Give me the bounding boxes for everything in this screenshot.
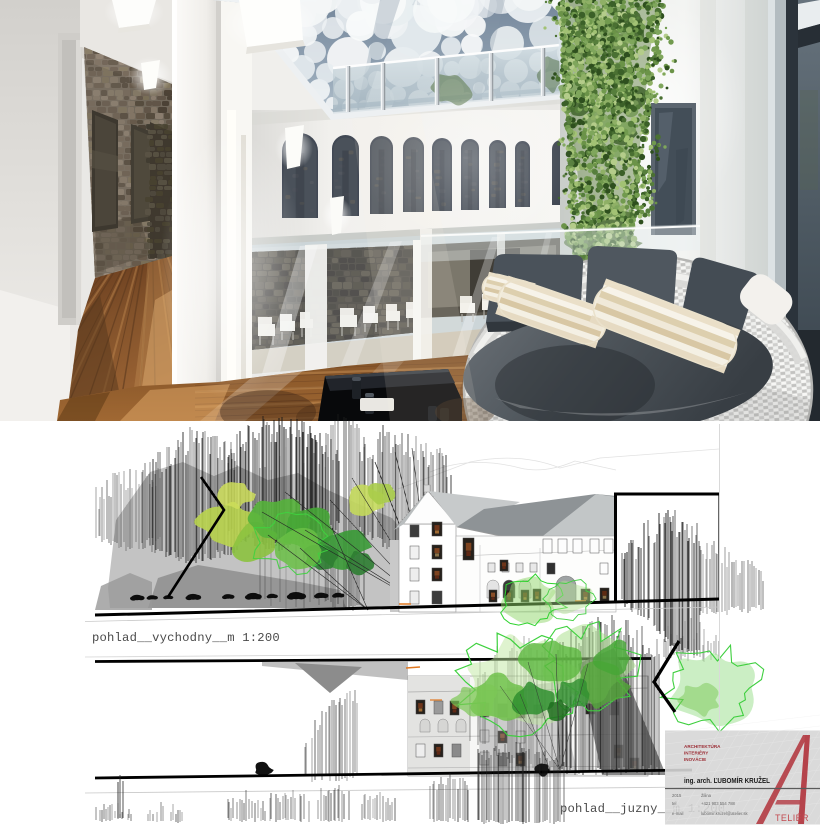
- svg-text:2015: 2015: [672, 793, 682, 798]
- svg-text:INOVÁCIE: INOVÁCIE: [684, 756, 706, 762]
- svg-text:e-mail: e-mail: [672, 811, 683, 816]
- svg-text:Žilina: Žilina: [701, 793, 712, 798]
- svg-text:TELIÉR: TELIÉR: [775, 813, 809, 823]
- svg-text:+421 903 554 788: +421 903 554 788: [701, 801, 736, 806]
- svg-text:pohlad__vychodny__m 1:200: pohlad__vychodny__m 1:200: [92, 631, 280, 645]
- svg-text:ing. arch. ĽUBOMÍR KRUŽEL: ing. arch. ĽUBOMÍR KRUŽEL: [684, 776, 770, 785]
- svg-text:INTERIÉRY: INTERIÉRY: [684, 749, 708, 756]
- svg-text:lubomir.kruzel@atelier.sk: lubomir.kruzel@atelier.sk: [701, 811, 749, 816]
- svg-text:ARCHITEKTÚRA: ARCHITEKTÚRA: [684, 743, 721, 749]
- svg-text:tel: tel: [672, 801, 676, 806]
